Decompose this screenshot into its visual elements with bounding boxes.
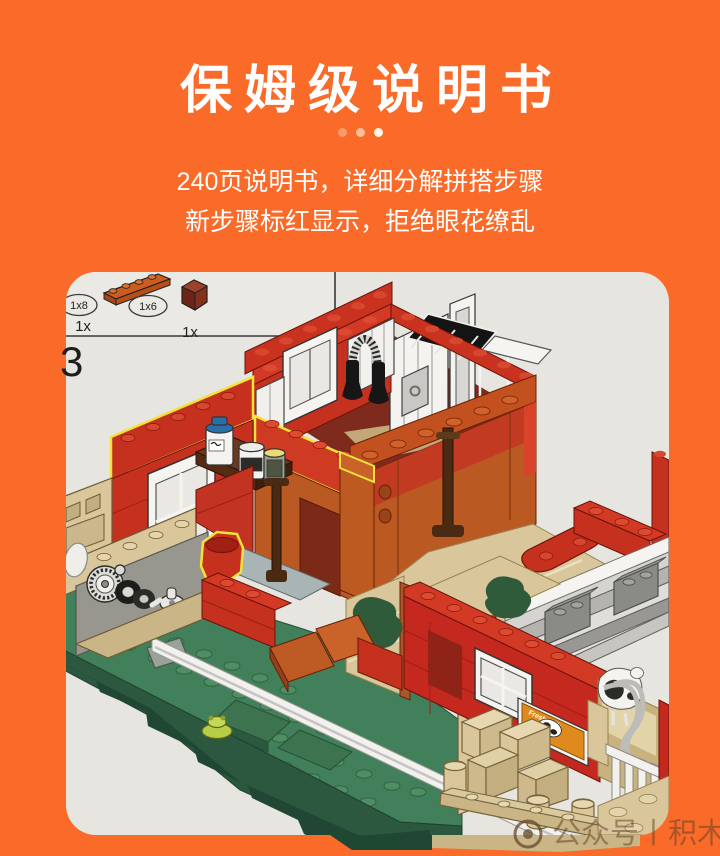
svg-text:1x: 1x [75, 318, 91, 335]
svg-text:1x: 1x [182, 324, 198, 341]
svg-text:1x8: 1x8 [70, 300, 88, 312]
svg-text:1x6: 1x6 [139, 301, 157, 313]
svg-text:3: 3 [60, 338, 83, 385]
